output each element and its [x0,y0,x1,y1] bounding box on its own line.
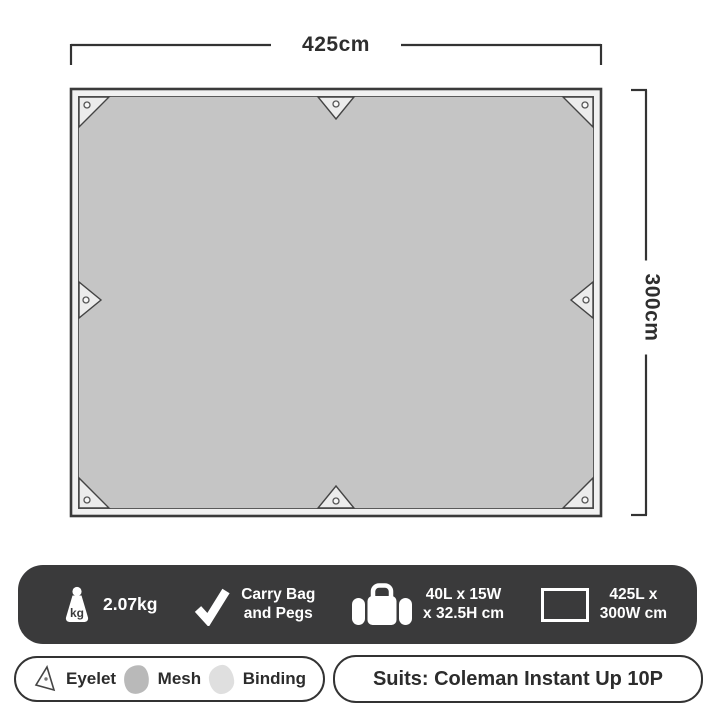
weight-kg-icon: kg [62,586,92,624]
weight-value: 2.07kg [103,594,157,615]
checkmark-icon [194,584,230,626]
legend-item-binding: Binding [209,665,306,694]
tarp-diagram [0,0,720,565]
included-text: Carry Bag and Pegs [241,586,315,624]
height-dimension-label: 300cm [640,261,665,355]
spec-bar: kg 2.07kg Carry Bag and Pegs 40L x 15W x… [18,565,697,644]
carry-bag-size-text: 40L x 15W x 32.5H cm [423,586,504,624]
duffel-bag-icon [352,583,412,627]
spec-weight: kg 2.07kg [62,586,157,624]
legend-item-eyelet: Eyelet [33,664,116,694]
eyelet-icon [33,664,57,694]
compatibility-text: Suits: Coleman Instant Up 10P [373,668,663,691]
spec-included: Carry Bag and Pegs [194,584,315,626]
mesh-swatch [122,663,151,695]
compatibility-pill: Suits: Coleman Instant Up 10P [333,655,703,703]
rectangle-outline-icon [541,588,589,622]
weight-unit-label: kg [70,606,84,620]
tarp-size-text: 425L x 300W cm [600,586,667,624]
tarp-fabric [79,97,594,509]
width-dimension-label: 425cm [271,33,401,57]
legend-pill: Eyelet Mesh Binding [14,656,325,702]
legend-item-mesh: Mesh [124,665,201,694]
spec-tarp-size: 425L x 300W cm [541,586,667,624]
spec-carry-bag-size: 40L x 15W x 32.5H cm [352,583,504,627]
binding-swatch [207,663,235,694]
